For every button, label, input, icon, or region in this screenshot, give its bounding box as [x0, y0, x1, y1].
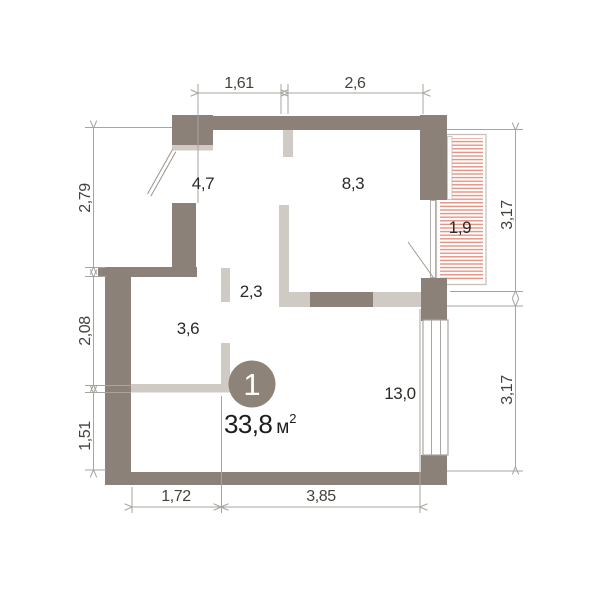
dim-left-mid-label: 2,08 [77, 316, 94, 346]
wall-top [213, 116, 424, 130]
corridor-wall-left [279, 292, 310, 307]
balcony-door-swing [408, 242, 433, 277]
wall-top-right-block [420, 115, 447, 200]
room-label-hall: 4,7 [192, 174, 214, 193]
wall-corridor-dark [310, 292, 373, 307]
balcony-frame [448, 137, 453, 200]
wall-left [105, 267, 131, 485]
entry-door-leaf-outer [148, 150, 173, 195]
unit-area-value: 33,8 [224, 409, 272, 439]
room-label-bathroom: 3,6 [177, 319, 199, 338]
balcony-door-leaf [431, 201, 436, 278]
wall-top-left-block [172, 115, 213, 145]
wall-right-bottom-block [421, 455, 447, 483]
corridor-wall-vertical [279, 205, 289, 307]
floor-plan: 1,61 2,6 2,79 2,08 1,51 3,17 3,17 1,72 3… [0, 0, 600, 590]
entry-sill [172, 145, 213, 151]
bathroom-wall-upper [221, 268, 230, 302]
wall-pillar [172, 203, 196, 277]
dim-left-top-label: 2,79 [77, 183, 94, 213]
unit-number: 1 [243, 367, 260, 402]
window-right [423, 320, 448, 455]
wall-right-mid-block [421, 278, 447, 321]
room-label-bedroom: 8,3 [342, 174, 364, 193]
room-label-corridor: 2,3 [240, 282, 262, 301]
dim-bottom-right-label: 3,85 [306, 488, 336, 505]
unit-area-unit: м [276, 417, 289, 438]
wall-bottom [105, 472, 447, 485]
dim-right-bottom-label: 3,17 [499, 375, 516, 405]
dim-top-right-label: 2,6 [344, 75, 366, 92]
room-label-balcony: 1,9 [449, 218, 471, 237]
unit-badge: 1 33,8м2 [224, 361, 297, 440]
bathroom-wall-bottom [131, 384, 230, 393]
dim-bottom-left-label: 1,72 [161, 488, 191, 505]
dim-right-top-label: 3,17 [499, 200, 516, 230]
floor-plan-svg: 1,61 2,6 2,79 2,08 1,51 3,17 3,17 1,72 3… [0, 0, 600, 590]
room-label-living: 13,0 [384, 384, 416, 403]
dim-top-left-label: 1,61 [224, 75, 254, 92]
unit-area: 33,8м2 [224, 409, 297, 439]
entry-door-leaf-inner [151, 152, 176, 197]
dim-left-bottom-label: 1,51 [77, 421, 94, 451]
corridor-wall-right [373, 292, 421, 307]
unit-area-sup: 2 [289, 411, 296, 426]
partition-stub [283, 130, 293, 157]
